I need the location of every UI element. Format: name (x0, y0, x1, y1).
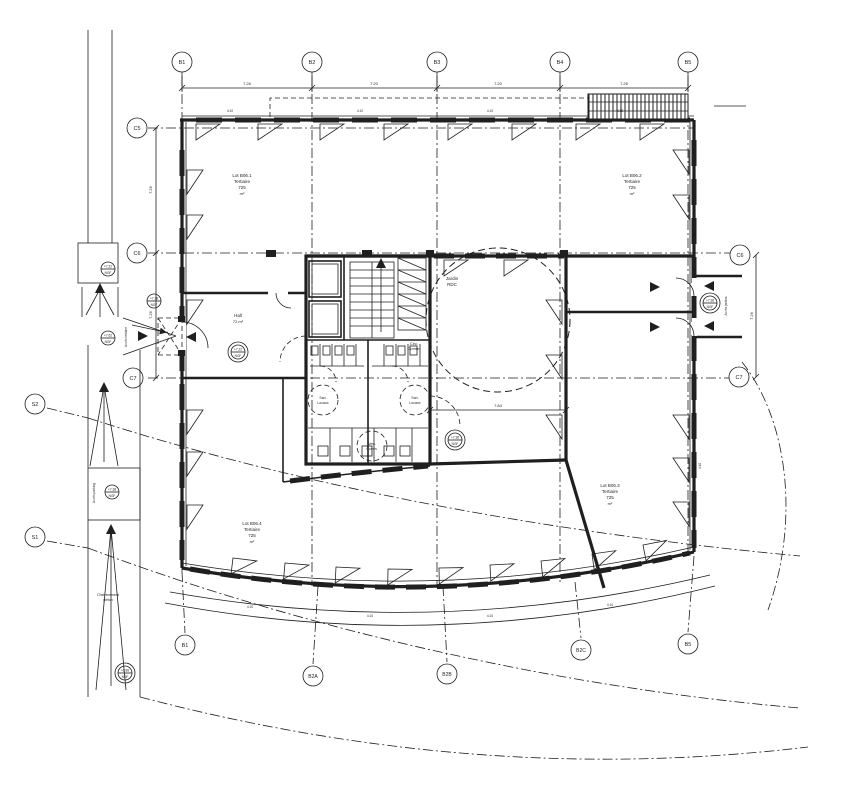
interior-walls (182, 250, 742, 588)
svg-text:4.10: 4.10 (617, 109, 623, 113)
svg-text:4.10: 4.10 (487, 614, 493, 618)
dim-right-bay: 7.26 (749, 311, 754, 320)
svg-text:Lot B06.1: Lot B06.1 (232, 173, 252, 178)
svg-text:Comm.: Comm. (408, 346, 421, 351)
core-block (306, 256, 430, 464)
dim-top-bay2: 7.20 (370, 81, 379, 86)
garden-access-note: Accès jardins (724, 296, 728, 315)
svg-text:+7.22: +7.22 (234, 348, 242, 352)
svg-text:Vest.: Vest. (368, 442, 376, 446)
garden-label-1: Jardin (446, 276, 459, 281)
svg-text:Lot B06.3: Lot B06.3 (600, 483, 620, 488)
svg-text:piéton: piéton (103, 598, 113, 602)
svg-text:72 m²: 72 m² (233, 319, 244, 324)
svg-text:Tertiaire: Tertiaire (234, 179, 251, 184)
svg-text:C5: C5 (133, 126, 140, 132)
svg-text:B5: B5 (685, 60, 692, 66)
svg-text:4.10: 4.10 (607, 603, 613, 607)
svg-text:NGF: NGF (151, 303, 158, 307)
dim-top-bay3: 7.20 (494, 81, 503, 86)
svg-text:4.10: 4.10 (357, 109, 363, 113)
svg-text:C6: C6 (133, 251, 140, 257)
floor-plan-sheet: 7.26 7.20 7.20 7.26 7.26 7.26 7.26 4.10 (0, 0, 850, 800)
svg-text:m²: m² (250, 539, 255, 544)
dim-top-bay4: 7.26 (620, 81, 629, 86)
svg-text:m²: m² (240, 191, 245, 196)
svg-text:San.: San. (411, 396, 418, 400)
svg-text:725: 725 (238, 185, 246, 190)
svg-text:B1: B1 (182, 643, 189, 649)
svg-text:B3: B3 (434, 60, 441, 66)
svg-text:B2C: B2C (576, 648, 586, 654)
left-ramps (88, 382, 140, 690)
svg-text:B2: B2 (309, 60, 316, 66)
svg-text:B5: B5 (685, 642, 692, 648)
svg-text:4.10: 4.10 (367, 614, 373, 618)
entry-access-note: Accès tertiaire (124, 327, 128, 347)
svg-text:B2A: B2A (308, 674, 318, 680)
svg-text:S1: S1 (32, 535, 39, 541)
svg-text:NGF: NGF (707, 305, 714, 309)
svg-text:Tertiaire: Tertiaire (624, 179, 641, 184)
shaft-column (398, 258, 426, 330)
doors (182, 278, 697, 426)
canopy-arcs (165, 575, 715, 625)
svg-text:+7.38: +7.38 (150, 297, 158, 301)
garden-label-2: RDC (447, 282, 457, 287)
svg-text:m²: m² (608, 501, 613, 506)
stair (350, 258, 394, 338)
svg-text:Hall: Hall (234, 313, 242, 318)
svg-text:C7: C7 (129, 376, 136, 382)
svg-text:NGF: NGF (235, 354, 242, 358)
site-note: Cheminement piéton (97, 593, 119, 602)
dim-right-module: 4.10 (698, 463, 702, 469)
dim-left-bay1: 7.26 (148, 185, 153, 194)
svg-text:+7.62: +7.62 (104, 334, 112, 338)
svg-text:+6.98: +6.98 (121, 669, 129, 673)
svg-text:Tertiaire: Tertiaire (244, 527, 261, 532)
dim-top-bay1: 7.26 (243, 81, 252, 86)
svg-text:C7: C7 (735, 375, 742, 381)
svg-text:San.: San. (319, 396, 326, 400)
svg-text:+7.38: +7.38 (451, 436, 459, 440)
garden-width-dim: 7.84 (494, 403, 503, 408)
svg-text:B2B: B2B (442, 672, 452, 678)
grid-marker-bubbles: B1 B2 B3 B4 B5 B1 B2A B2B B2C B5 C5 C6 C… (25, 52, 750, 686)
svg-text:Cheminement: Cheminement (97, 593, 119, 597)
parking-access-note: Accès parking (92, 483, 96, 503)
svg-text:Lot B06.2: Lot B06.2 (622, 173, 642, 178)
roof-grille (588, 94, 688, 119)
svg-text:Comm.: Comm. (366, 447, 377, 451)
svg-text:725: 725 (606, 495, 614, 500)
svg-text:Locaux: Locaux (317, 401, 329, 405)
floor-plan-drawing: 7.26 7.20 7.20 7.26 7.26 7.26 7.26 4.10 (0, 0, 850, 800)
svg-text:NGF: NGF (452, 442, 459, 446)
svg-text:725: 725 (248, 533, 256, 538)
svg-text:4.10: 4.10 (247, 605, 253, 609)
svg-text:S2: S2 (32, 402, 39, 408)
svg-text:4.10: 4.10 (487, 109, 493, 113)
svg-text:B1: B1 (179, 60, 186, 66)
svg-text:NGF: NGF (105, 340, 112, 344)
svg-text:+7.38: +7.38 (108, 488, 116, 492)
window-opening-symbols (187, 124, 689, 585)
svg-text:m²: m² (630, 191, 635, 196)
svg-text:4.10: 4.10 (227, 109, 233, 113)
svg-text:+7.38: +7.38 (706, 299, 714, 303)
module-dimension-texts: 4.10 4.10 4.10 4.10 4.10 4.10 4.10 4.10 (227, 109, 623, 618)
dim-left-bay2: 7.26 (148, 310, 153, 319)
svg-text:+7.22: +7.22 (104, 265, 112, 269)
svg-text:B4: B4 (557, 60, 564, 66)
svg-text:NGF: NGF (105, 271, 112, 275)
svg-text:Tertiaire: Tertiaire (602, 489, 619, 494)
svg-text:Lot B06.4: Lot B06.4 (242, 521, 262, 526)
garden-void: Jardin RDC 7.84 (426, 248, 570, 413)
svg-text:725: 725 (628, 185, 636, 190)
svg-text:Locaux: Locaux (409, 401, 421, 405)
svg-text:NGF: NGF (109, 494, 116, 498)
svg-text:C6: C6 (736, 253, 743, 259)
hall-exit-arrow (186, 332, 196, 342)
